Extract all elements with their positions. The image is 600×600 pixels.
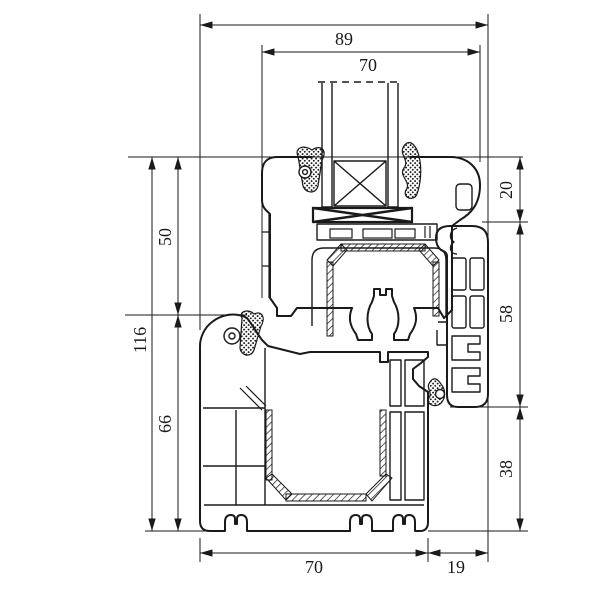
dim-label-116: 116 [130,327,150,353]
sash-hardware-groove [350,289,438,340]
sash-right-chamber [456,184,472,210]
frame-profile [200,311,445,531]
dim-label-50: 50 [155,228,175,246]
dim-label-70-top: 70 [359,55,377,75]
dim-label-38: 38 [496,460,516,478]
gasket-glass-right [402,143,420,199]
gasket-glass-left [297,147,324,192]
dim-right-top: 20 [496,157,520,222]
dim-left-upper: 50 [155,157,178,315]
dim-label-20: 20 [496,181,516,199]
flange-chambers [452,258,484,392]
dim-label-89: 89 [335,29,353,49]
sash-outer-right [438,157,480,318]
dim-right-bottom: 38 [496,407,520,531]
setting-block-bowtie [313,208,412,222]
dim-left-lower: 66 [155,315,178,531]
dim-top-overall: 89 [200,25,488,49]
dim-bottom-flange: 19 [428,553,488,577]
dim-label-58: 58 [496,305,516,323]
frame-chamber-dividers [203,348,424,505]
glazing-bead [317,224,437,240]
dim-label-66: 66 [155,415,175,433]
sash-right-hook [437,322,447,345]
dim-label-70-bottom: 70 [305,557,323,577]
dim-top-sash: 70 [262,52,480,75]
gasket-frame-left [224,311,263,355]
steel-reinforcement-frame [266,410,392,501]
dim-right-middle: 58 [496,222,520,407]
steel-reinforcement-sash [327,244,439,336]
drawing-canvas: 89 70 20 58 38 116 50 66 [0,0,600,600]
glazing-spacer-cross [334,161,386,206]
dim-label-19: 19 [447,557,465,577]
dim-bottom-frame: 70 [200,553,428,577]
gasket-frame-right [428,379,445,406]
sash-left-chamber-dividers [262,214,270,298]
dim-left-overall: 116 [130,157,152,531]
window-profile-section-drawing: 89 70 20 58 38 116 50 66 [0,0,600,600]
